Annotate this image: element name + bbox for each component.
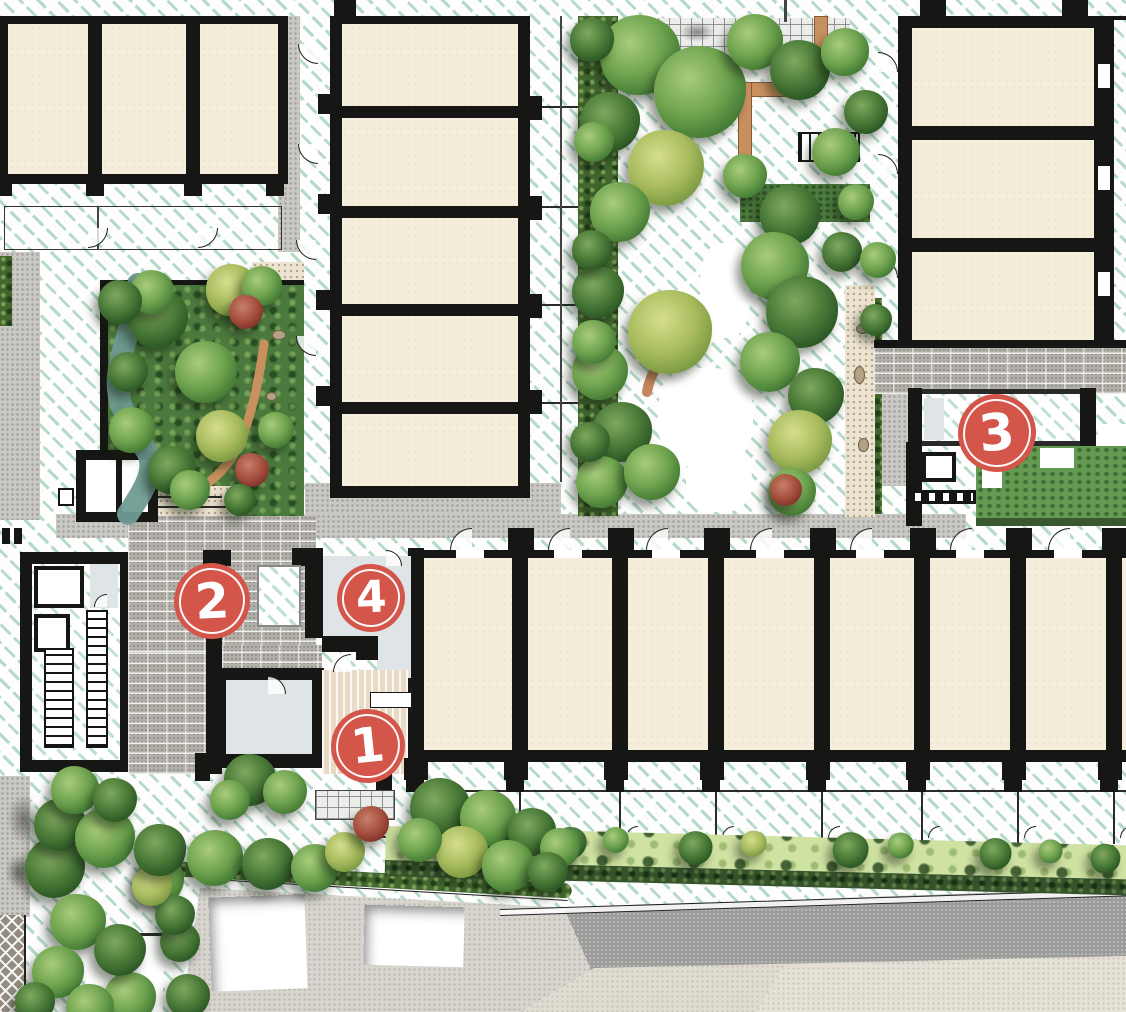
door-arc-icon <box>386 550 402 566</box>
patio-stub <box>908 776 926 792</box>
balcony-post <box>520 196 542 220</box>
roof-stub <box>920 0 946 16</box>
property-line <box>560 16 562 482</box>
stepping-stone <box>272 330 286 340</box>
door-arc-icon <box>298 44 318 64</box>
patio-stub <box>1100 776 1118 792</box>
patio-stub <box>506 776 524 792</box>
unit-room <box>342 218 518 304</box>
plaza-skylight <box>363 905 465 968</box>
bench-table <box>370 692 412 708</box>
balcony-post <box>266 174 284 196</box>
door-arc-icon <box>333 654 351 672</box>
unit-room <box>342 118 518 206</box>
roof-stub <box>1062 0 1088 16</box>
window-slit <box>1098 64 1110 88</box>
unit-divider <box>708 556 724 762</box>
unit-divider <box>1010 556 1026 762</box>
floor-pad <box>924 398 944 440</box>
unit-room <box>102 24 186 174</box>
hedge-sliver <box>0 256 12 326</box>
patio-stub <box>702 776 720 792</box>
marker-number: 2 <box>194 576 231 627</box>
tree <box>768 410 832 474</box>
curb-tick <box>2 528 10 544</box>
survey-line <box>784 0 787 22</box>
unit-divider <box>512 556 528 762</box>
roof-stub <box>334 0 356 18</box>
tree-shadow <box>672 18 722 46</box>
lawn-pad <box>1040 448 1074 468</box>
window-slit <box>1098 166 1110 190</box>
tree <box>822 232 862 272</box>
planter-box <box>922 452 956 482</box>
unit-divider <box>1106 556 1122 762</box>
balcony-post <box>520 294 542 318</box>
small-room <box>34 566 84 608</box>
balcony-post <box>86 174 104 196</box>
balcony-post <box>520 390 542 414</box>
marker-number: 1 <box>349 720 387 771</box>
unit-divider <box>612 556 628 762</box>
curb-tick <box>14 528 22 544</box>
tree <box>844 90 888 134</box>
tree <box>628 290 712 374</box>
wall <box>356 652 378 660</box>
balcony-post <box>0 174 12 196</box>
tree <box>821 28 869 76</box>
door-arc-icon <box>296 240 316 260</box>
unit-room <box>912 28 1094 126</box>
door-stub <box>704 528 730 552</box>
stepping-stone <box>854 366 865 384</box>
lawn-edge <box>976 518 1126 526</box>
unit-room <box>8 24 88 174</box>
wall <box>922 389 1080 394</box>
marker-number: 3 <box>977 406 1017 460</box>
meter-box <box>58 488 74 506</box>
brick-skylight <box>257 565 301 627</box>
balcony-outline <box>4 206 282 250</box>
unit-divider <box>914 556 930 762</box>
marker-number: 4 <box>355 575 387 620</box>
tree <box>51 766 99 814</box>
tree <box>624 444 680 500</box>
plaza-skylight <box>208 894 307 991</box>
patio-stub <box>606 776 624 792</box>
door-arc-icon <box>1024 826 1036 838</box>
door-arc-icon <box>878 52 898 72</box>
door-arc-icon <box>878 154 898 174</box>
door-stub <box>508 528 534 552</box>
unit-room <box>342 414 518 486</box>
tree <box>572 230 612 270</box>
wall <box>305 548 323 638</box>
courtyard-path <box>686 452 752 512</box>
door-arc-icon <box>298 144 318 164</box>
tree <box>263 770 307 814</box>
tree <box>134 824 186 876</box>
tree <box>210 780 250 820</box>
tree <box>576 456 628 508</box>
wall <box>874 340 1126 348</box>
unit-room <box>342 24 518 106</box>
door-stub <box>810 528 836 552</box>
tree <box>170 470 210 510</box>
unit-room <box>912 140 1094 238</box>
lawn-pad <box>1100 424 1126 446</box>
tree <box>570 18 614 62</box>
wall <box>1080 388 1096 452</box>
door-arc-icon <box>1120 826 1126 838</box>
wall <box>906 442 922 526</box>
door-stub <box>608 528 634 552</box>
small-room <box>34 614 70 652</box>
hatch-strip <box>1114 20 1126 342</box>
wall <box>322 636 378 652</box>
bike-rack <box>86 610 108 748</box>
patio-stub <box>1004 776 1022 792</box>
door-stub <box>1006 528 1032 552</box>
door-arc-icon <box>928 826 940 838</box>
door-stub <box>910 528 936 552</box>
patio-stub <box>808 776 826 792</box>
tree <box>166 974 210 1012</box>
elevator-divider <box>116 460 122 512</box>
tree <box>860 304 892 336</box>
tree <box>93 778 137 822</box>
balcony-post <box>520 96 542 120</box>
tree <box>15 982 55 1012</box>
unit-room <box>912 252 1094 340</box>
door-arc-icon <box>1048 528 1070 550</box>
tree <box>812 128 860 176</box>
vent-grill <box>908 490 976 504</box>
unit-room <box>342 316 518 402</box>
stepping-stone <box>266 392 277 401</box>
unit-room <box>200 24 278 174</box>
site-plan-canvas: 1 2 3 4 <box>0 0 1126 1012</box>
unit-divider <box>814 556 830 762</box>
post <box>195 753 210 781</box>
stepping-stone <box>858 438 869 452</box>
balcony-post <box>184 174 202 196</box>
bike-rack <box>44 648 74 748</box>
window-slit <box>1098 272 1110 296</box>
door-stub <box>1102 528 1126 552</box>
